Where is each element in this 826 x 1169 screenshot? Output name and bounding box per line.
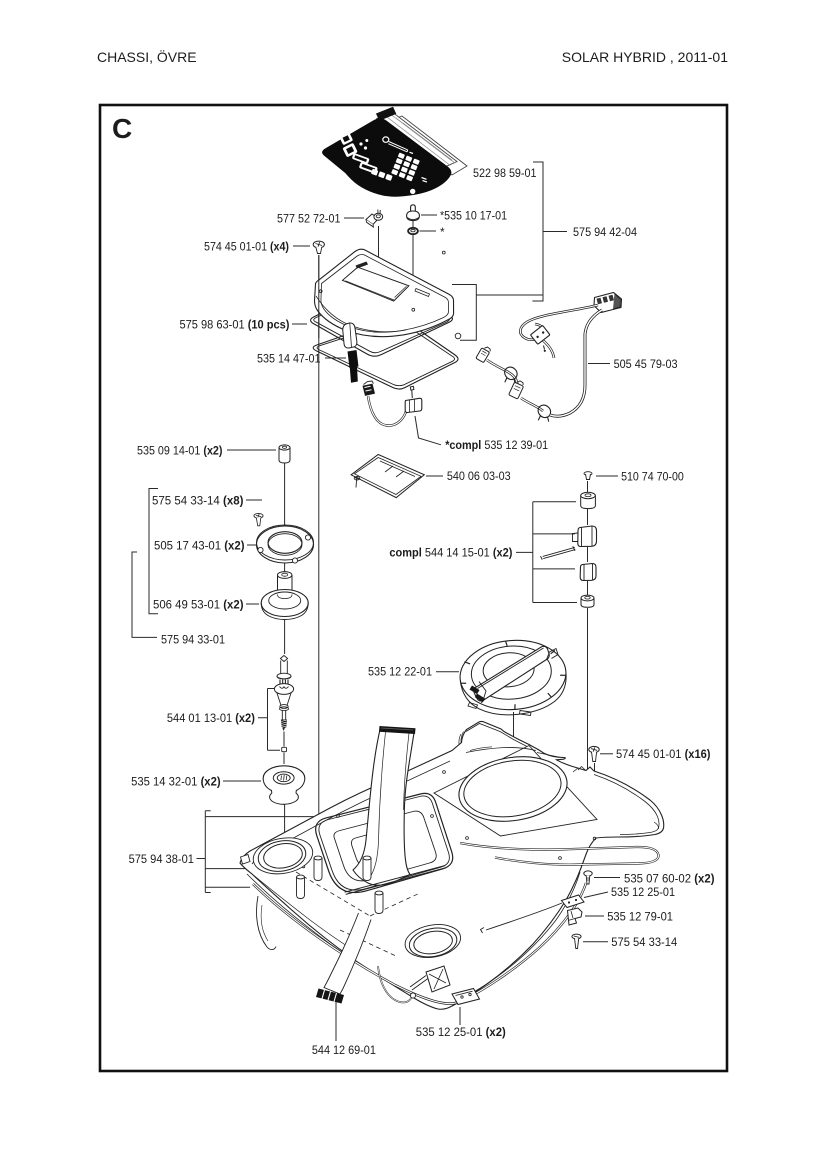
svg-text:505 45 79-03: 505 45 79-03 [614,357,678,371]
svg-text:574 45 01-01 (x16): 574 45 01-01 (x16) [616,747,711,761]
svg-text:575 54 33-14 (x8): 575 54 33-14 (x8) [152,493,244,507]
svg-text:535 09 14-01 (x2): 535 09 14-01 (x2) [137,443,223,457]
svg-text:575 98 63-01 (10 pcs): 575 98 63-01 (10 pcs) [180,317,290,331]
svg-text:C: C [112,113,132,144]
svg-text:535 12 22-01: 535 12 22-01 [368,664,432,678]
svg-text:544 01 13-01 (x2): 544 01 13-01 (x2) [167,711,255,725]
svg-text:535 12 25-01 (x2): 535 12 25-01 (x2) [416,1025,506,1039]
svg-text:535 14 32-01 (x2): 535 14 32-01 (x2) [131,774,221,788]
svg-text:544 12 69-01: 544 12 69-01 [312,1043,376,1057]
svg-text:506 49 53-01 (x2): 506 49 53-01 (x2) [153,597,244,611]
svg-text:535 14 47-01: 535 14 47-01 [257,351,321,365]
svg-text:575 94 38-01: 575 94 38-01 [129,852,195,866]
svg-text:575 94 42-04: 575 94 42-04 [573,225,637,239]
svg-text:*: * [440,225,445,239]
svg-text:*compl 535 12 39-01: *compl 535 12 39-01 [445,438,548,452]
svg-text:540 06 03-03: 540 06 03-03 [447,469,511,483]
svg-text:574 45 01-01 (x4): 574 45 01-01 (x4) [204,239,289,253]
svg-text:510 74 70-00: 510 74 70-00 [621,469,684,483]
svg-text:522 98 59-01: 522 98 59-01 [473,166,537,180]
svg-text:575 94 33-01: 575 94 33-01 [161,632,225,646]
svg-text:535 07 60-02 (x2): 535 07 60-02 (x2) [624,871,715,885]
svg-text:CHASSI, ÖVRE: CHASSI, ÖVRE [97,48,197,65]
svg-text:535 12 25-01: 535 12 25-01 [611,885,675,899]
svg-text:*535 10 17-01: *535 10 17-01 [440,208,507,222]
svg-text:505 17 43-01 (x2): 505 17 43-01 (x2) [154,538,245,552]
svg-text:compl 544 14 15-01 (x2): compl 544 14 15-01 (x2) [389,546,512,560]
svg-text:535 12 79-01: 535 12 79-01 [607,909,673,923]
svg-text:577 52 72-01: 577 52 72-01 [277,211,341,225]
svg-text:SOLAR HYBRID , 2011-01: SOLAR HYBRID , 2011-01 [562,49,728,65]
svg-text:575 54 33-14: 575 54 33-14 [611,935,677,949]
